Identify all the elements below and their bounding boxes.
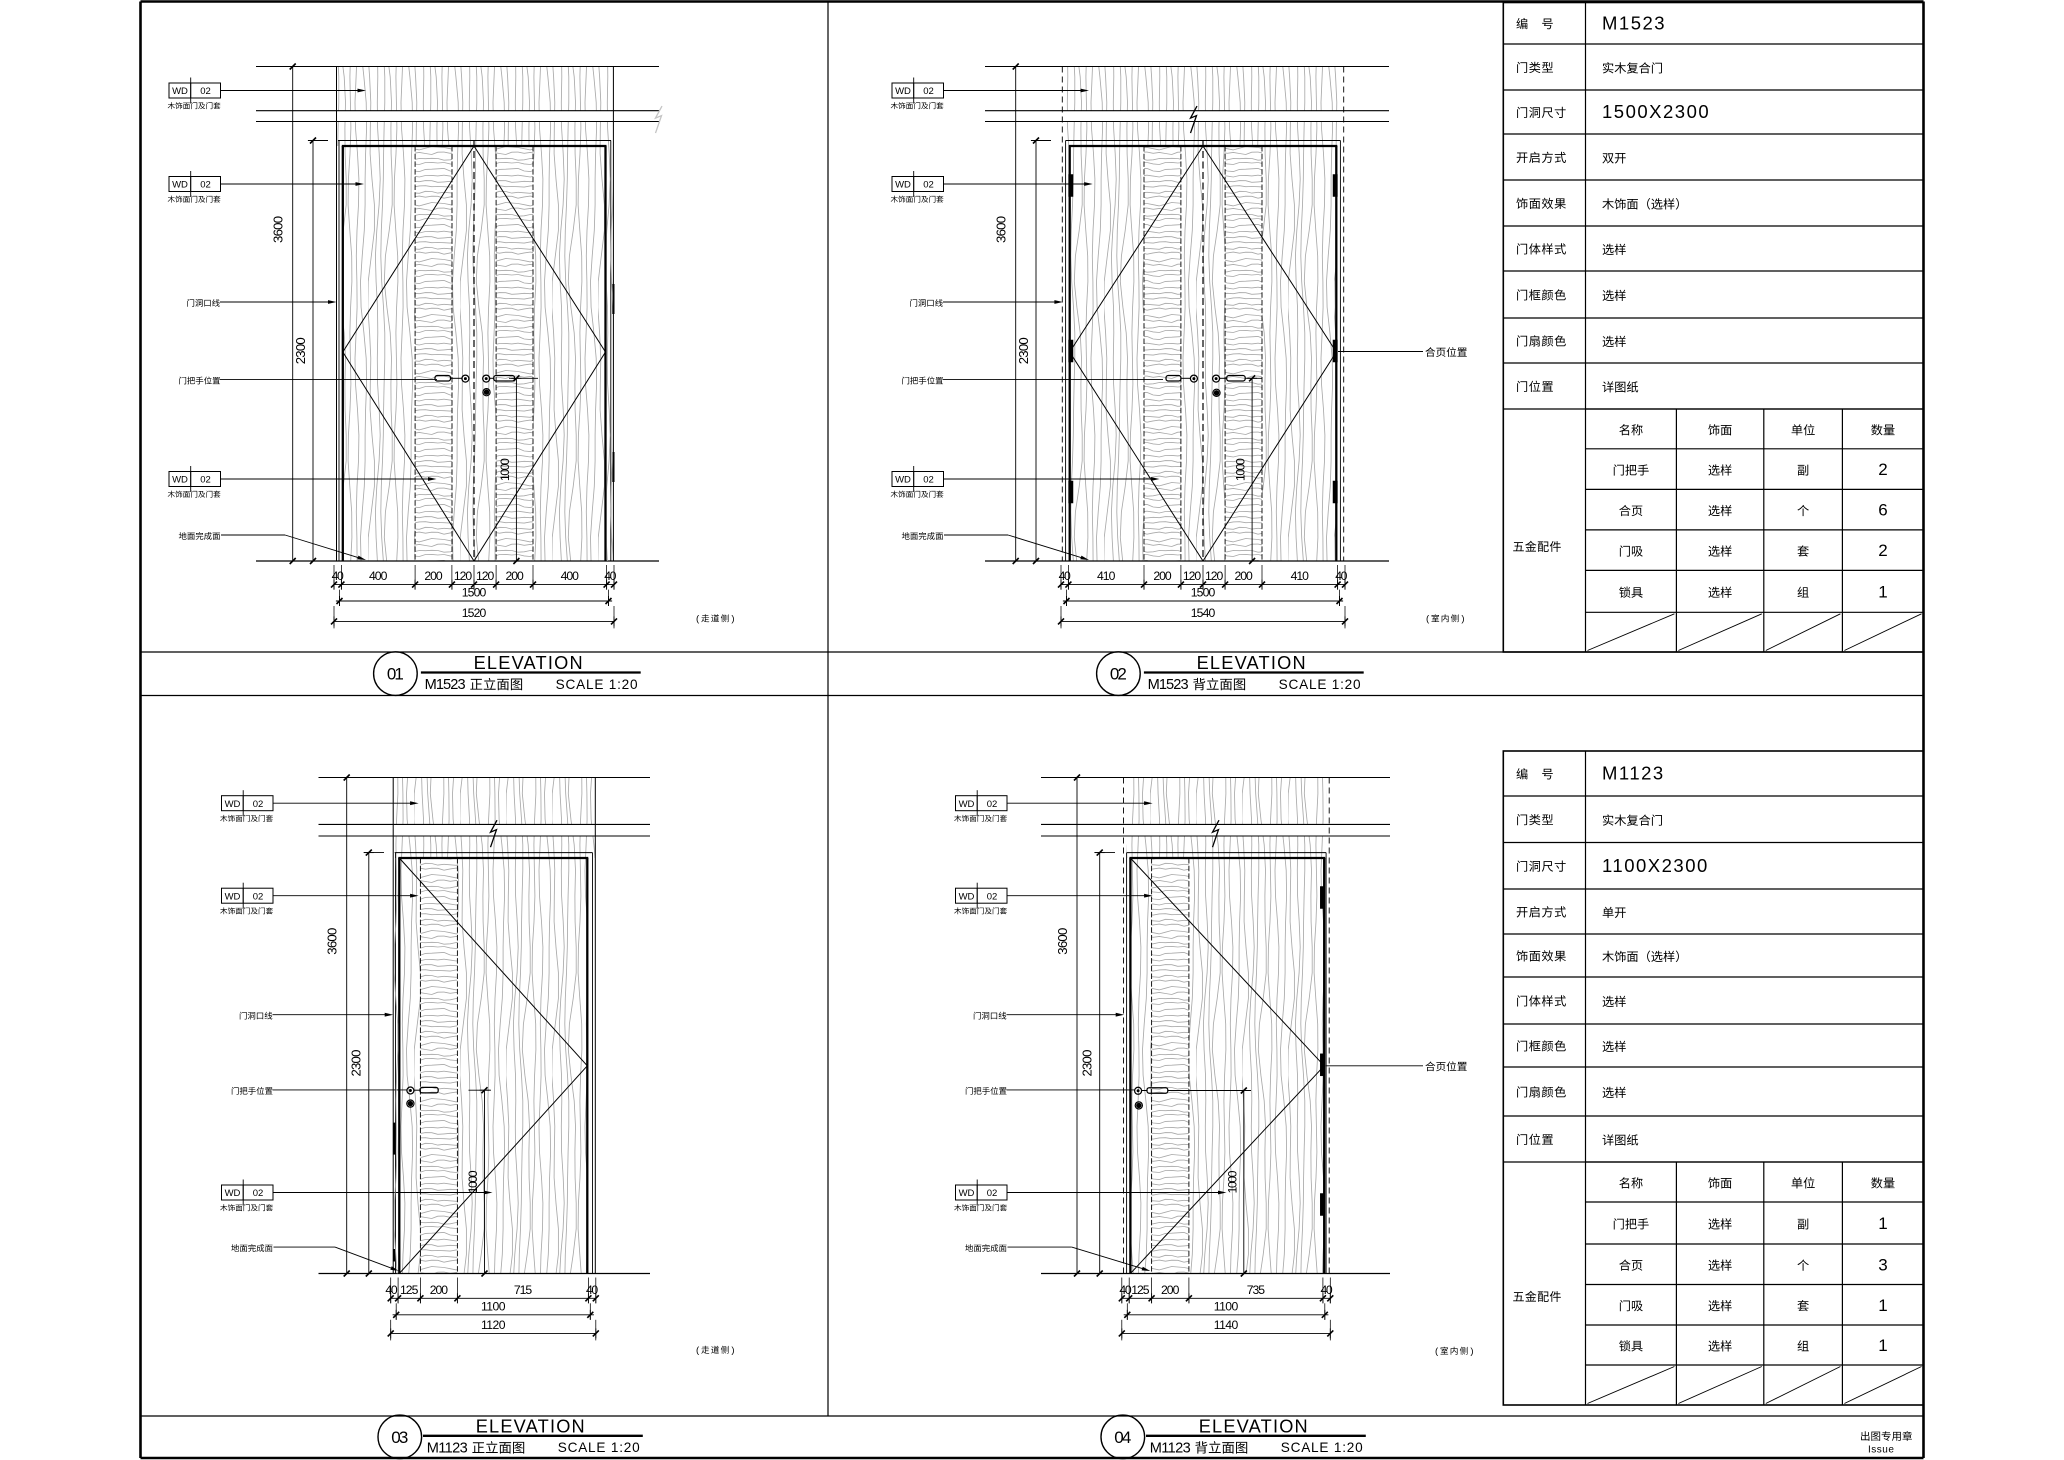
svg-text:03: 03 bbox=[391, 1428, 408, 1447]
svg-text:02: 02 bbox=[987, 891, 998, 902]
svg-text:2: 2 bbox=[1878, 460, 1887, 479]
svg-text:1: 1 bbox=[1878, 1296, 1887, 1315]
svg-text:ELEVATION: ELEVATION bbox=[1199, 1416, 1308, 1436]
svg-text:1120: 1120 bbox=[481, 1318, 506, 1332]
svg-text:200: 200 bbox=[424, 569, 443, 583]
svg-text:6: 6 bbox=[1878, 501, 1887, 520]
svg-text:1000: 1000 bbox=[466, 1170, 480, 1193]
svg-text:200: 200 bbox=[430, 1283, 449, 1297]
svg-text:): ) bbox=[731, 614, 734, 625]
svg-text:02: 02 bbox=[253, 891, 264, 902]
svg-text:M1123: M1123 bbox=[1150, 1441, 1191, 1457]
svg-text:1000: 1000 bbox=[498, 458, 512, 481]
svg-text:02: 02 bbox=[253, 1188, 264, 1199]
svg-text:WD: WD bbox=[225, 799, 241, 810]
svg-text:3600: 3600 bbox=[994, 216, 1009, 243]
svg-text:1000: 1000 bbox=[1234, 458, 1248, 481]
svg-text:1500: 1500 bbox=[1191, 586, 1216, 600]
svg-text:WD: WD bbox=[172, 475, 188, 486]
svg-text:410: 410 bbox=[1291, 569, 1310, 583]
svg-text:ELEVATION: ELEVATION bbox=[1197, 653, 1306, 673]
svg-text:ELEVATION: ELEVATION bbox=[476, 1416, 585, 1436]
svg-text:3600: 3600 bbox=[325, 928, 340, 955]
svg-text:02: 02 bbox=[200, 180, 211, 191]
svg-text:WD: WD bbox=[895, 180, 911, 191]
svg-text:1: 1 bbox=[1878, 1214, 1887, 1233]
svg-text:WD: WD bbox=[172, 180, 188, 191]
svg-text:WD: WD bbox=[225, 1188, 241, 1199]
svg-text:1140: 1140 bbox=[1214, 1318, 1239, 1332]
svg-text:02: 02 bbox=[923, 180, 934, 191]
svg-text:02: 02 bbox=[923, 86, 934, 97]
svg-text:04: 04 bbox=[1114, 1428, 1131, 1447]
svg-text:40: 40 bbox=[385, 1283, 397, 1297]
svg-text:SCALE 1:20: SCALE 1:20 bbox=[1281, 1440, 1363, 1455]
svg-text:02: 02 bbox=[1110, 665, 1127, 684]
svg-text:125: 125 bbox=[400, 1283, 419, 1297]
svg-text:3600: 3600 bbox=[271, 216, 286, 243]
svg-text:1500: 1500 bbox=[462, 586, 487, 600]
svg-text:02: 02 bbox=[253, 799, 264, 810]
svg-text:1100: 1100 bbox=[481, 1299, 506, 1313]
svg-text:SCALE 1:20: SCALE 1:20 bbox=[558, 1440, 640, 1455]
svg-text:1520: 1520 bbox=[462, 606, 487, 620]
svg-text:40: 40 bbox=[604, 569, 616, 583]
svg-text:1540: 1540 bbox=[1191, 606, 1216, 620]
svg-text:Issue: Issue bbox=[1868, 1445, 1894, 1456]
svg-text:200: 200 bbox=[1153, 569, 1172, 583]
svg-text:M1123: M1123 bbox=[1602, 763, 1665, 784]
svg-text:400: 400 bbox=[561, 569, 580, 583]
svg-text:WD: WD bbox=[895, 86, 911, 97]
svg-text:): ) bbox=[1461, 614, 1464, 625]
svg-text:2300: 2300 bbox=[293, 337, 308, 364]
svg-text:WD: WD bbox=[959, 799, 975, 810]
svg-text:400: 400 bbox=[369, 569, 388, 583]
svg-text:02: 02 bbox=[200, 86, 211, 97]
svg-text:1: 1 bbox=[1878, 1336, 1887, 1355]
svg-text:M1123: M1123 bbox=[427, 1441, 468, 1457]
svg-text:2300: 2300 bbox=[349, 1050, 364, 1077]
svg-text:2300: 2300 bbox=[1016, 337, 1031, 364]
svg-text:1100X2300: 1100X2300 bbox=[1602, 855, 1709, 876]
svg-text:120: 120 bbox=[476, 569, 495, 583]
svg-text:1100: 1100 bbox=[1214, 1299, 1239, 1313]
svg-text:ELEVATION: ELEVATION bbox=[474, 653, 583, 673]
svg-text:02: 02 bbox=[987, 1188, 998, 1199]
svg-text:200: 200 bbox=[1161, 1283, 1180, 1297]
svg-text:M1523: M1523 bbox=[1602, 12, 1666, 33]
svg-text:125: 125 bbox=[1131, 1283, 1150, 1297]
svg-text:WD: WD bbox=[895, 475, 911, 486]
svg-text:SCALE 1:20: SCALE 1:20 bbox=[556, 677, 638, 692]
svg-text:): ) bbox=[1470, 1346, 1473, 1357]
svg-text:WD: WD bbox=[225, 891, 241, 902]
svg-text:200: 200 bbox=[1234, 569, 1253, 583]
svg-text:02: 02 bbox=[987, 799, 998, 810]
svg-text:M1523: M1523 bbox=[1148, 677, 1189, 693]
svg-text:SCALE 1:20: SCALE 1:20 bbox=[1279, 677, 1361, 692]
svg-text:3600: 3600 bbox=[1055, 928, 1070, 955]
svg-text:735: 735 bbox=[1247, 1283, 1266, 1297]
svg-text:WD: WD bbox=[959, 891, 975, 902]
svg-text:3: 3 bbox=[1878, 1255, 1887, 1274]
svg-text:WD: WD bbox=[172, 86, 188, 97]
svg-text:M1523: M1523 bbox=[425, 677, 466, 693]
svg-text:410: 410 bbox=[1097, 569, 1116, 583]
svg-text:40: 40 bbox=[1335, 569, 1347, 583]
svg-text:02: 02 bbox=[200, 475, 211, 486]
svg-text:40: 40 bbox=[1119, 1283, 1131, 1297]
svg-text:02: 02 bbox=[923, 475, 934, 486]
svg-text:1500X2300: 1500X2300 bbox=[1602, 101, 1710, 122]
svg-text:120: 120 bbox=[454, 569, 473, 583]
svg-text:40: 40 bbox=[332, 569, 344, 583]
svg-text:40: 40 bbox=[1059, 569, 1071, 583]
svg-text:WD: WD bbox=[959, 1188, 975, 1199]
svg-text:): ) bbox=[731, 1345, 734, 1356]
svg-text:200: 200 bbox=[505, 569, 524, 583]
svg-text:2300: 2300 bbox=[1080, 1050, 1095, 1077]
svg-text:1: 1 bbox=[1878, 582, 1887, 601]
svg-text:40: 40 bbox=[1321, 1283, 1333, 1297]
svg-text:40: 40 bbox=[586, 1283, 598, 1297]
svg-text:1000: 1000 bbox=[1225, 1170, 1239, 1193]
svg-text:120: 120 bbox=[1183, 569, 1202, 583]
svg-text:2: 2 bbox=[1878, 541, 1887, 560]
svg-text:120: 120 bbox=[1205, 569, 1224, 583]
svg-text:01: 01 bbox=[387, 665, 404, 684]
svg-text:715: 715 bbox=[514, 1283, 533, 1297]
